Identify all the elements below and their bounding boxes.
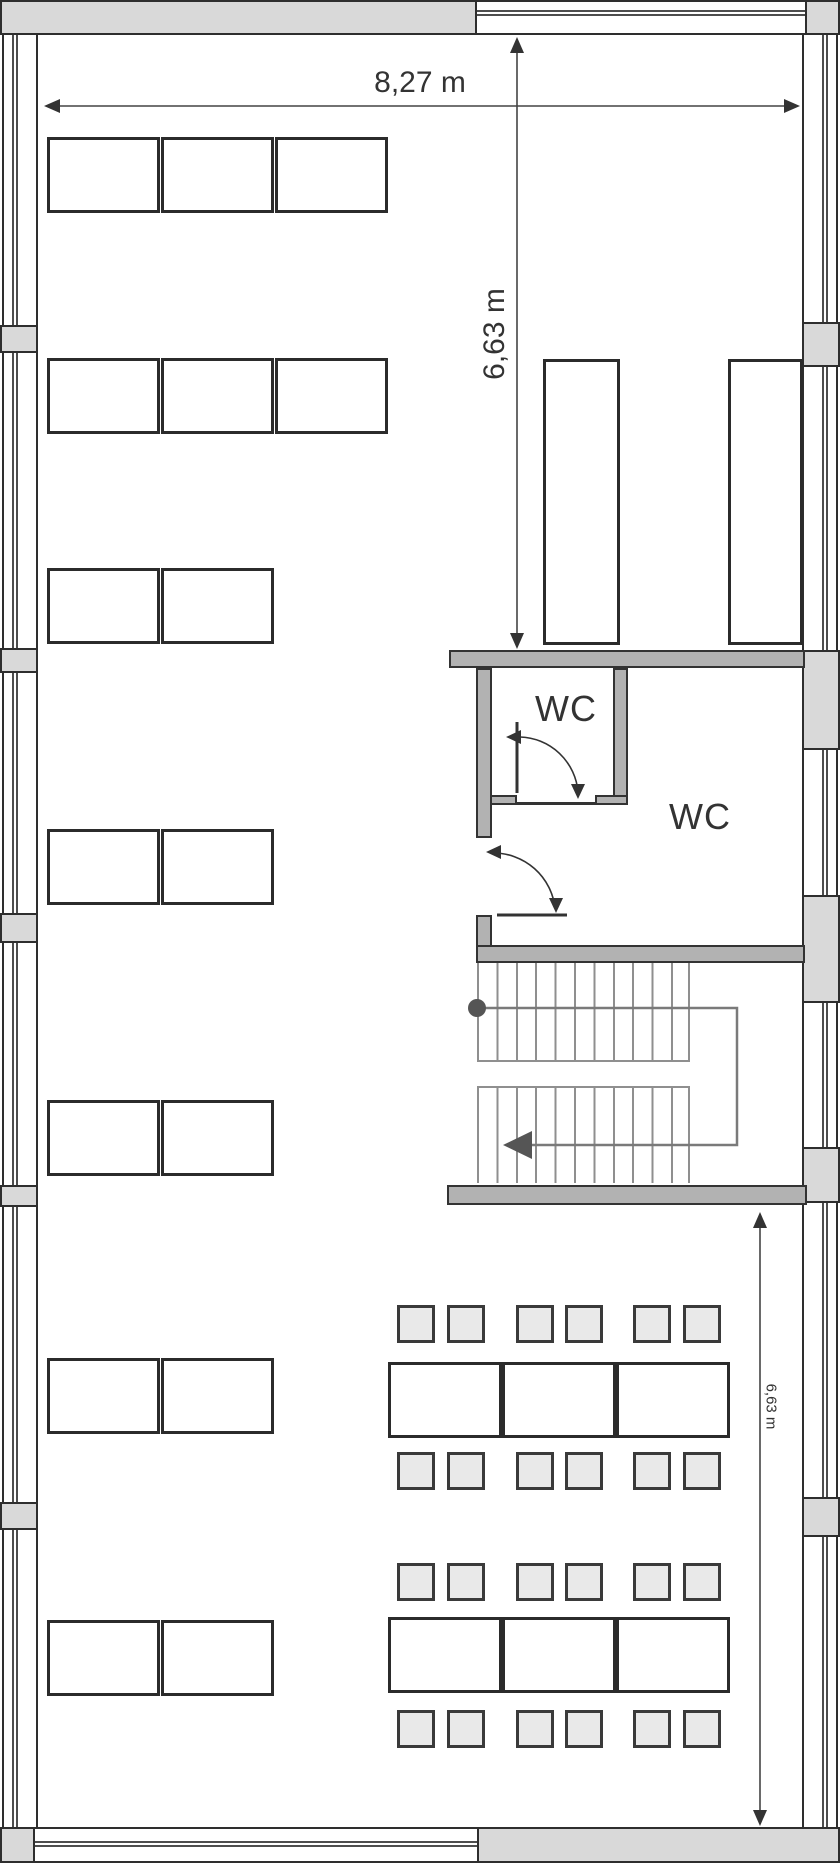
door-wc-small [506,722,585,799]
arrow-left-icon [506,730,521,744]
dimension-height-lower [753,1212,767,1826]
door-swing-arc [493,853,555,908]
door-swing-arc [520,737,578,792]
stair-walk-line [468,999,737,1159]
arrow-down-icon [549,898,563,913]
walk-line-start-dot [468,999,486,1017]
dimension-height-upper [510,37,524,649]
floor-plan: 8,27 m 6,63 m 6,63 m WC WC [0,0,840,1863]
arrow-left-icon [44,99,60,113]
arrow-up-icon [753,1212,767,1228]
walk-direction-arrow-icon [503,1131,532,1159]
arrow-down-icon [510,633,524,649]
wc-room-label-small: WC [506,688,626,728]
linework-overlay [0,0,840,1863]
wc-room-label-large: WC [640,796,760,836]
dim-width-label: 8,27 m [320,66,520,102]
dim-height-upper-label: 6,63 m [478,274,510,394]
arrow-down-icon [571,784,585,799]
dim-height-lower-label: 6,63 m [763,1347,780,1467]
door-wc-large [486,845,567,915]
arrow-right-icon [784,99,800,113]
arrow-left-icon [486,845,501,859]
arrow-up-icon [510,37,524,53]
arrow-down-icon [753,1810,767,1826]
